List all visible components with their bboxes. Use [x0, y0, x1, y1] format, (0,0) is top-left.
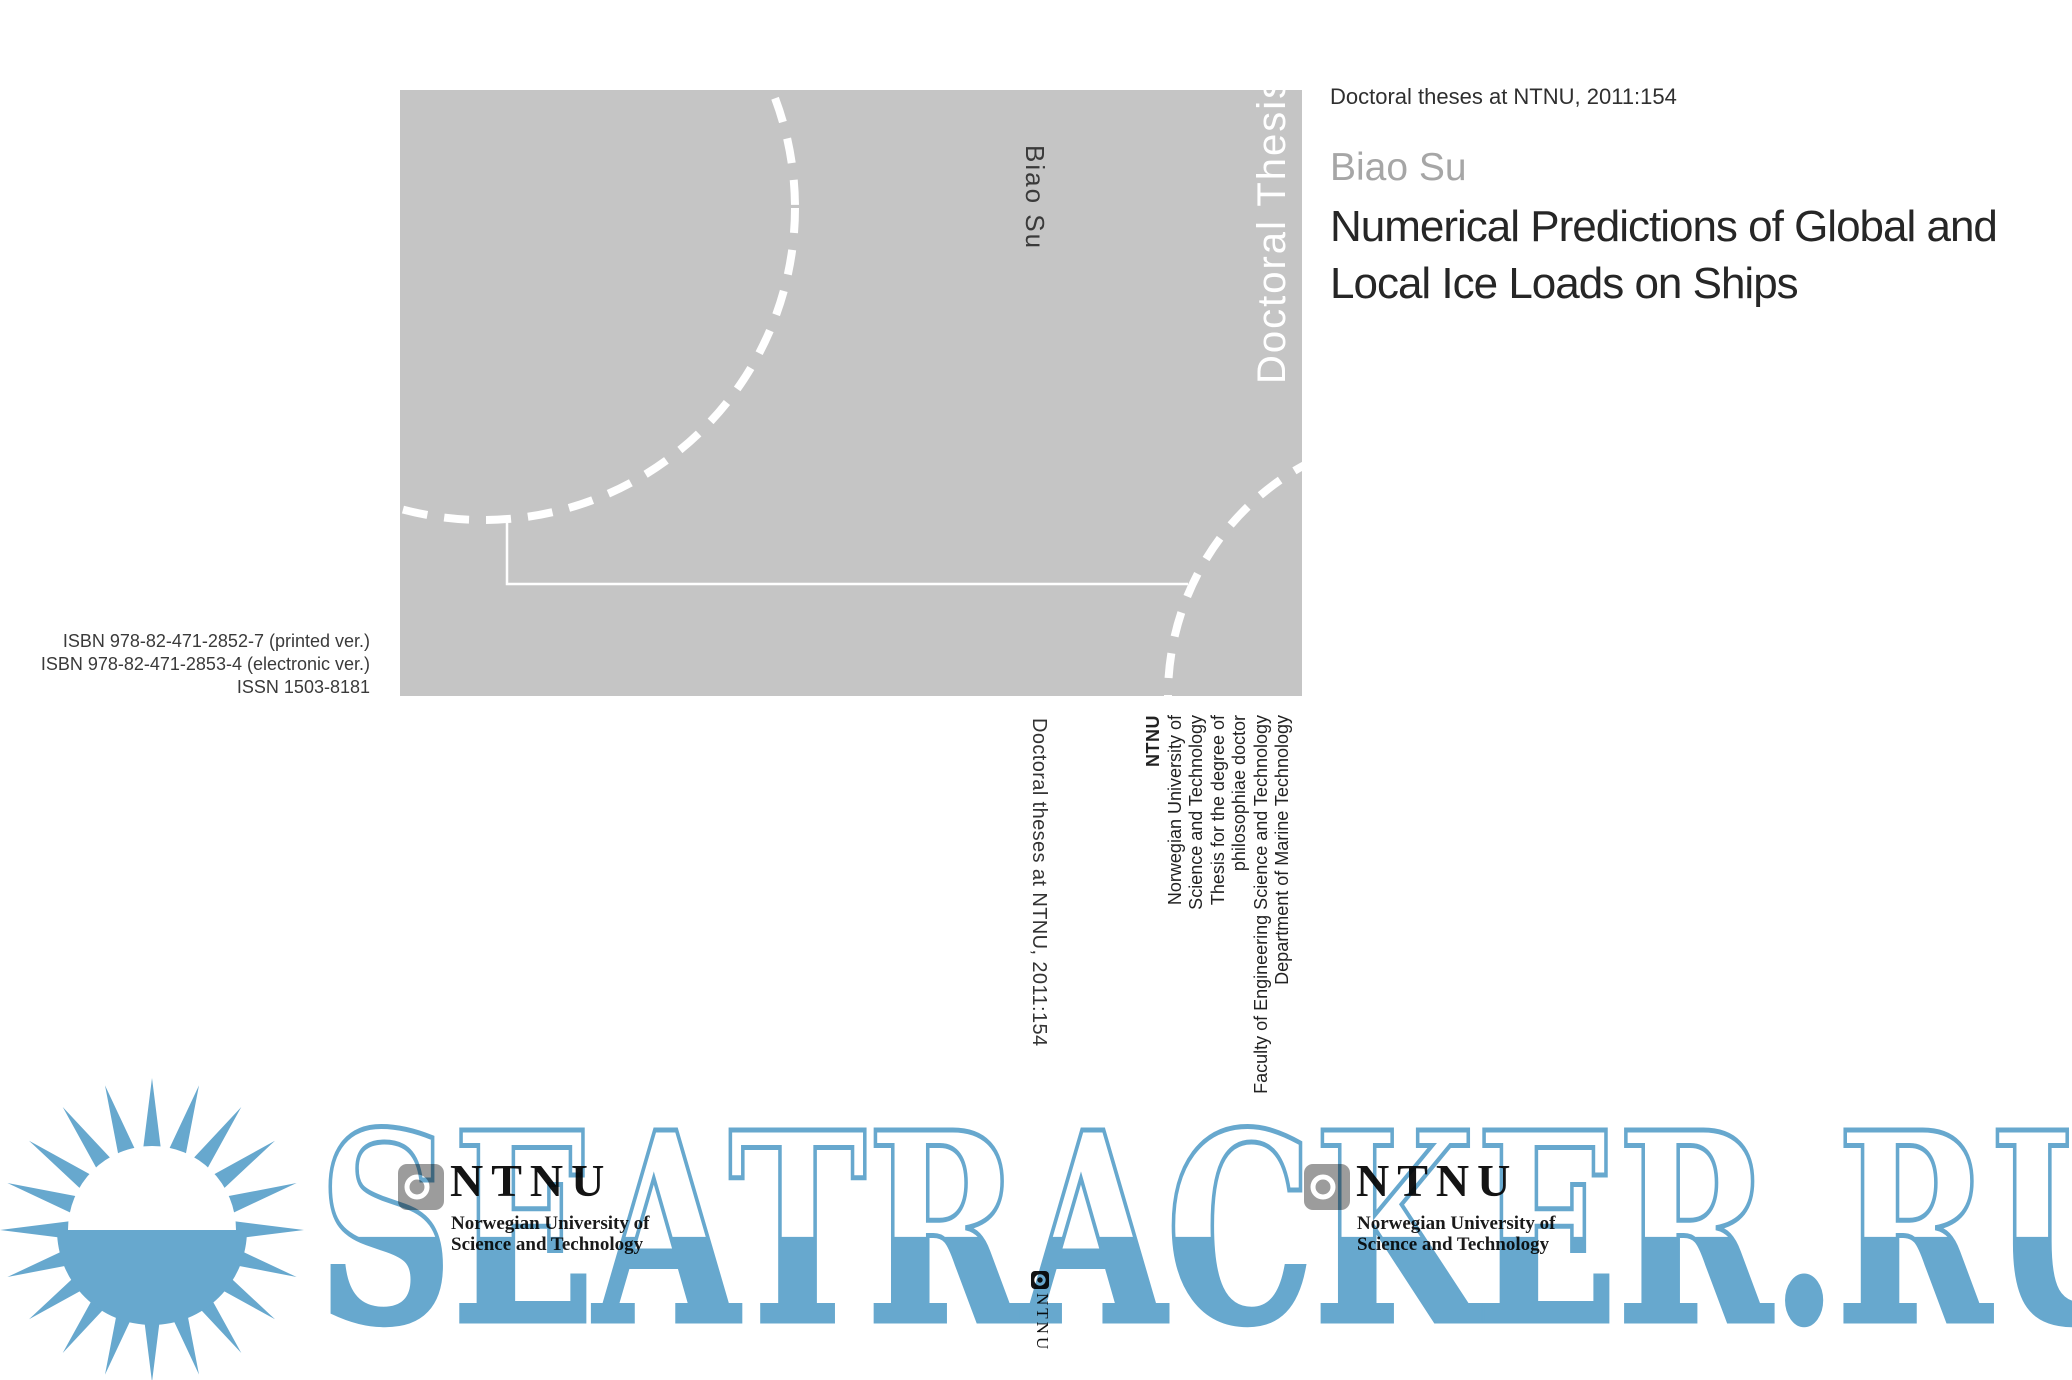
dashed-circle-large	[400, 90, 795, 520]
ntnu-subtitle-line1: Norwegian University of	[1357, 1214, 1555, 1235]
cover-spine-author: Biao Su	[1020, 145, 1050, 250]
title-line-1: Numerical Predictions of Global and	[1330, 198, 1997, 255]
ntnu-emblem-small-icon	[1031, 1271, 1049, 1289]
fold-series-vertical: Doctoral theses at NTNU, 2011:154	[1026, 718, 1052, 1047]
institution-line: Norwegian University of	[1165, 715, 1187, 1095]
front-title: Numerical Predictions of Global and Loca…	[1330, 198, 1997, 312]
ntnu-wordmark: NTNU	[450, 1154, 612, 1208]
institution-block: NTNU Norwegian University of Science and…	[1143, 715, 1294, 1095]
ntnu-subtitle-line1: Norwegian University of	[451, 1214, 649, 1235]
ntnu-subtitle: Norwegian University of Science and Tech…	[451, 1214, 649, 1255]
cover-art-graphics	[400, 90, 1302, 696]
ntnu-spine-wordmark: NTNU	[1031, 1293, 1053, 1352]
institution-line: Faculty of Engineering Science and Techn…	[1251, 715, 1273, 1095]
cover-spine-series: Doctoral Thesis	[1246, 77, 1298, 384]
series-header: Doctoral theses at NTNU, 2011:154	[1330, 82, 1677, 112]
front-author: Biao Su	[1330, 146, 1467, 190]
ntnu-logo-right: NTNU Norwegian University of Science and…	[1304, 1158, 1614, 1268]
isbn-electronic: ISBN 978-82-471-2853-4 (electronic ver.)	[20, 653, 370, 676]
ntnu-emblem-icon	[398, 1164, 444, 1210]
ntnu-subtitle: Norwegian University of Science and Tech…	[1357, 1214, 1555, 1255]
institution-line: philosophiae doctor	[1229, 715, 1251, 1095]
dashed-circle-small	[1168, 433, 1302, 696]
sun-rays	[0, 1078, 304, 1380]
sun-lower-disc	[57, 1230, 247, 1325]
ntnu-wordmark: NTNU	[1356, 1154, 1518, 1208]
ntnu-subtitle-line2: Science and Technology	[451, 1235, 649, 1256]
institution-line: Science and Technology	[1186, 715, 1208, 1095]
ntnu-emblem-icon	[1304, 1164, 1350, 1210]
ntnu-logo-left: NTNU Norwegian University of Science and…	[398, 1158, 708, 1268]
title-line-2: Local Ice Loads on Ships	[1330, 255, 1997, 312]
sun-logo-icon	[0, 1070, 312, 1380]
institution-line: NTNU	[1143, 715, 1165, 1095]
ntnu-subtitle-line2: Science and Technology	[1357, 1235, 1555, 1256]
thesis-cover-spread: Biao Su Doctoral Thesis Doctoral theses …	[0, 0, 2072, 1380]
isbn-printed: ISBN 978-82-471-2852-7 (printed ver.)	[20, 630, 370, 653]
issn: ISSN 1503-8181	[20, 676, 370, 699]
institution-line: Department of Marine Technology	[1272, 715, 1294, 1095]
sun-upper-disc	[68, 1146, 236, 1230]
cover-art-panel: Biao Su Doctoral Thesis	[400, 90, 1302, 696]
isbn-block: ISBN 978-82-471-2852-7 (printed ver.) IS…	[20, 630, 370, 698]
institution-line: Thesis for the degree of	[1208, 715, 1230, 1095]
white-connector-line	[507, 519, 1188, 584]
